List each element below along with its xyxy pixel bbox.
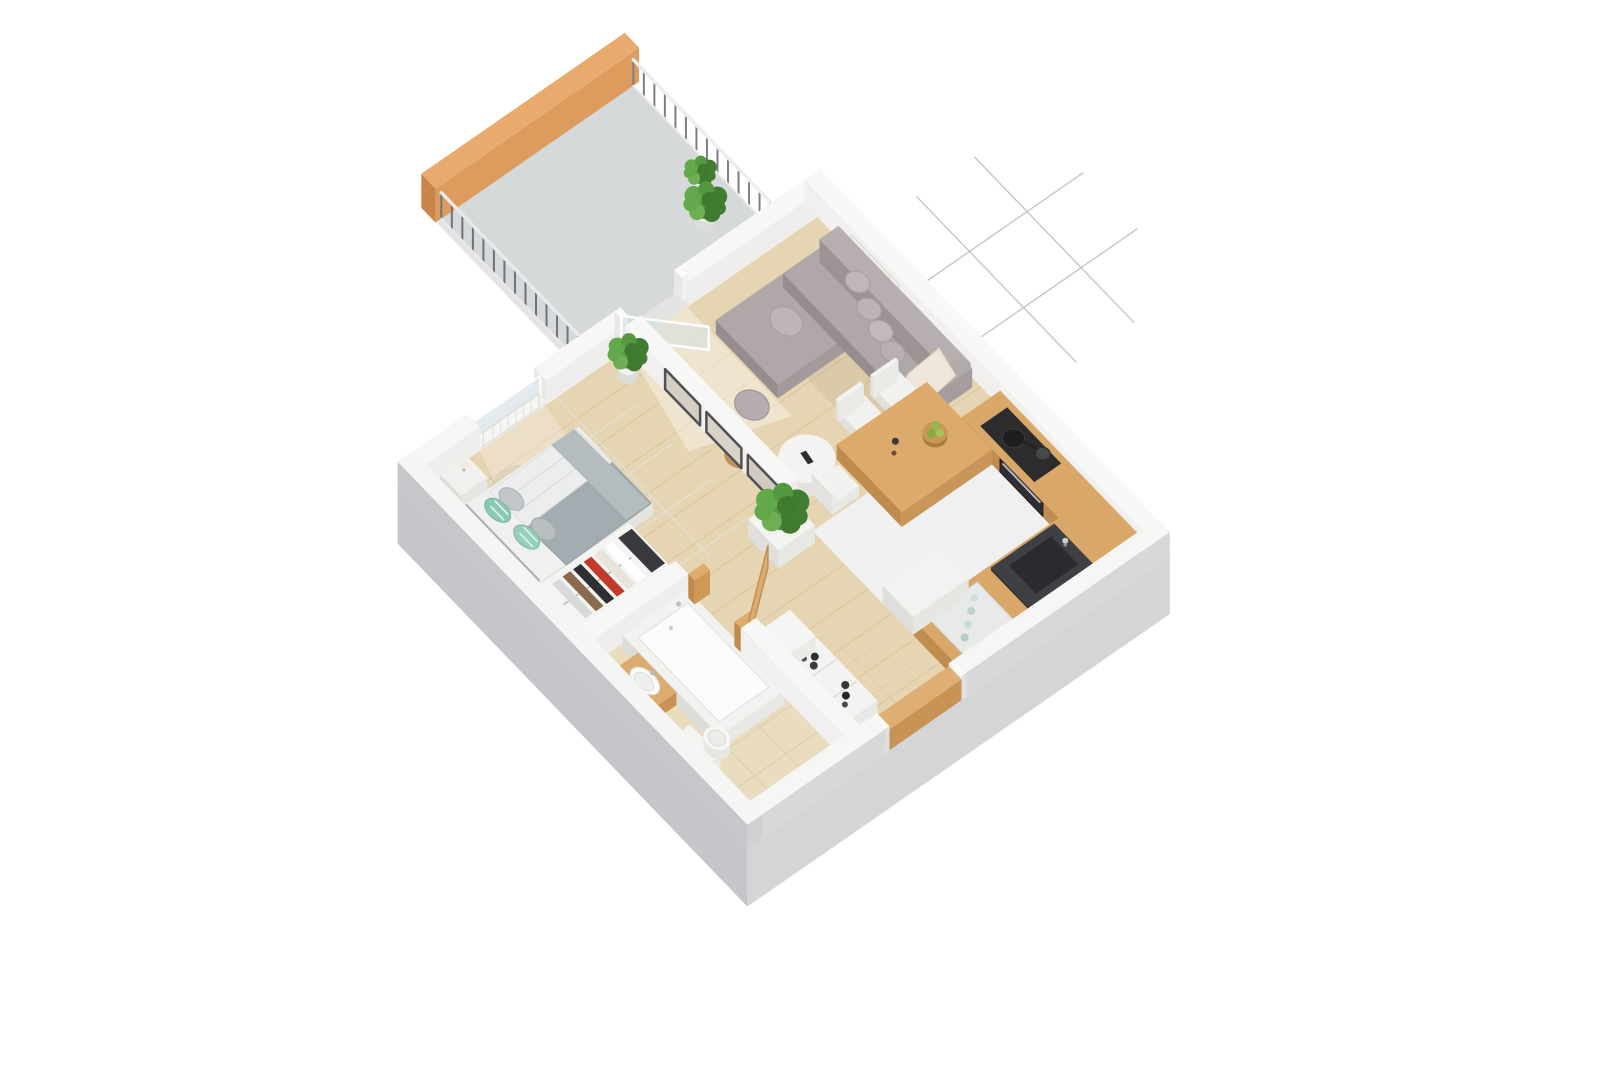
balcony-tile-seams-y: [968, 229, 1137, 346]
balcony-plant-1-foliage: [697, 164, 709, 176]
dining-chair-3-back-right-face: [832, 492, 836, 515]
floorplan-3d-render: [0, 0, 1621, 1080]
hall-plant-foliage: [777, 496, 797, 516]
table-small-items: [892, 451, 897, 456]
floorplan-stage: [0, 0, 1621, 1080]
bedroom-plant-foliage: [625, 343, 640, 358]
dishes-in-rack: [970, 594, 978, 602]
balcony-plant-2-foliage: [701, 192, 717, 208]
bathtub-drain-and-faucet: [669, 626, 673, 630]
nightstand-lamp: [459, 459, 469, 469]
table-small-items: [892, 438, 899, 445]
balcony-tile-seams-y: [914, 173, 1083, 290]
front-door-jamb-a-right-face: [962, 673, 967, 700]
fruit-in-bowl: [927, 429, 935, 437]
fruit-in-bowl: [936, 429, 944, 437]
dining-chair-2-back-left-face: [836, 399, 839, 422]
frying-pan-top: [1002, 429, 1024, 448]
kitchen-faucet: [1063, 543, 1067, 547]
balcony-plant-2-foliage: [683, 197, 697, 211]
dishes-in-rack: [967, 607, 975, 615]
balcony-door-jamb-post-a-right-face: [682, 274, 688, 302]
nightstand-lamp: [462, 468, 465, 471]
hall-plant-foliage: [755, 503, 773, 521]
shoes-pair-1: [810, 662, 818, 670]
fruit-in-bowl: [932, 423, 939, 430]
bathroom-sink-faucet: [650, 670, 655, 675]
shoes-pair-2: [841, 681, 849, 689]
dining-chair-1-back-left-face: [870, 375, 873, 398]
shoes-pair-1: [811, 653, 819, 661]
cooking-pot-top: [1035, 447, 1050, 460]
bathtub-drain-and-faucet: [676, 602, 681, 607]
shoes-pair-2: [842, 702, 848, 708]
dishes-in-rack: [961, 633, 969, 641]
kitchen-faucet: [1062, 538, 1068, 544]
shoes-pair-2: [842, 692, 850, 700]
balcony-plant-1-foliage: [684, 168, 695, 179]
bedroom-plant-foliage: [608, 348, 621, 361]
front-door-jamb-b-right-face: [885, 726, 890, 753]
dishes-in-rack: [964, 620, 972, 628]
balcony-tile-seams-x: [975, 157, 1134, 322]
